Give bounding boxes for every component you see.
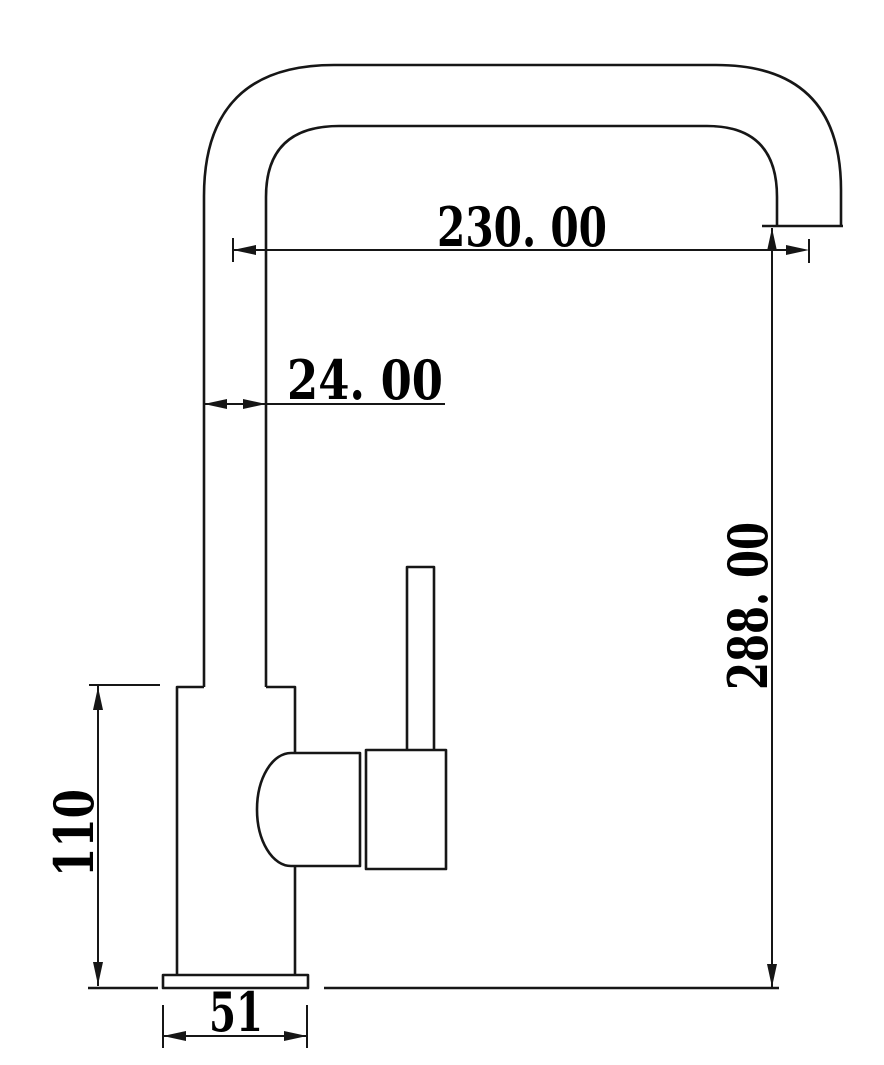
dimension-label-spout-pipe-width: 24. 00 <box>287 348 443 412</box>
dimension-spout-reach: 230. 00 <box>233 195 809 263</box>
body-right-side-upper <box>266 687 295 753</box>
handle-joint <box>257 753 360 866</box>
arrowhead-right <box>284 1031 307 1041</box>
dimension-label-base-width: 51 <box>209 980 263 1044</box>
arrowhead-bottom <box>93 962 103 985</box>
handle-base-block <box>366 750 446 869</box>
dimension-label-body-height: 110 <box>42 789 106 877</box>
arrowhead-left <box>204 399 227 409</box>
arrowhead-left <box>233 245 256 255</box>
arrowhead-right <box>786 245 809 255</box>
dimension-body-height: 110 <box>42 685 160 986</box>
arrowhead-right <box>243 399 266 409</box>
dimension-spout-height: 288. 00 <box>716 228 780 987</box>
dimension-spout-pipe-width: 24. 00 <box>204 348 445 412</box>
faucet-technical-drawing: 230. 00 24. 00 288. 00 110 <box>0 0 884 1065</box>
arrowhead-top <box>767 228 777 251</box>
arrowhead-bottom <box>767 964 777 987</box>
arrowhead-left <box>163 1031 186 1041</box>
arrowhead-top <box>93 687 103 710</box>
dimension-label-spout-height: 288. 00 <box>716 522 780 690</box>
drawing-canvas: 230. 00 24. 00 288. 00 110 <box>0 0 884 1065</box>
dimension-label-spout-reach: 230. 00 <box>437 195 607 259</box>
handle-lever <box>407 567 434 750</box>
dimension-base-width: 51 <box>163 980 307 1048</box>
body-left-side <box>177 687 204 975</box>
